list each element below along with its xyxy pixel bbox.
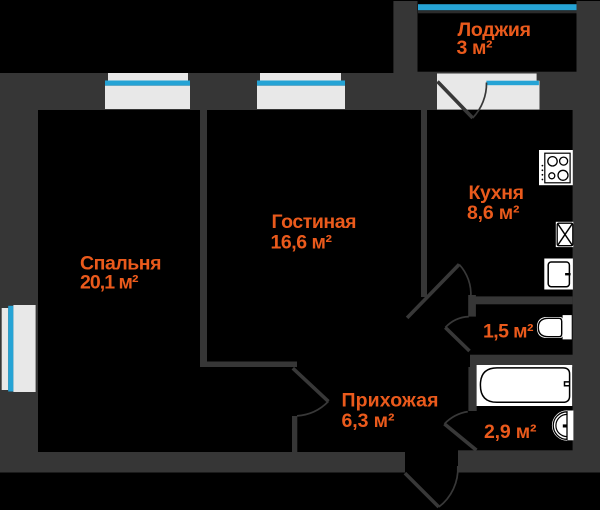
svg-text:8,6 м²: 8,6 м² (467, 202, 520, 224)
svg-text:Гостиная: Гостиная (272, 211, 357, 233)
svg-text:16,6 м²: 16,6 м² (271, 232, 333, 254)
svg-text:1,5 м²: 1,5 м² (483, 321, 534, 343)
svg-text:6,3 м²: 6,3 м² (342, 410, 396, 432)
svg-text:3 м²: 3 м² (457, 37, 494, 59)
svg-text:20,1 м²: 20,1 м² (80, 272, 139, 294)
svg-text:Кухня: Кухня (469, 182, 525, 204)
svg-text:Прихожая: Прихожая (342, 390, 439, 412)
svg-text:2,9 м²: 2,9 м² (484, 421, 537, 443)
